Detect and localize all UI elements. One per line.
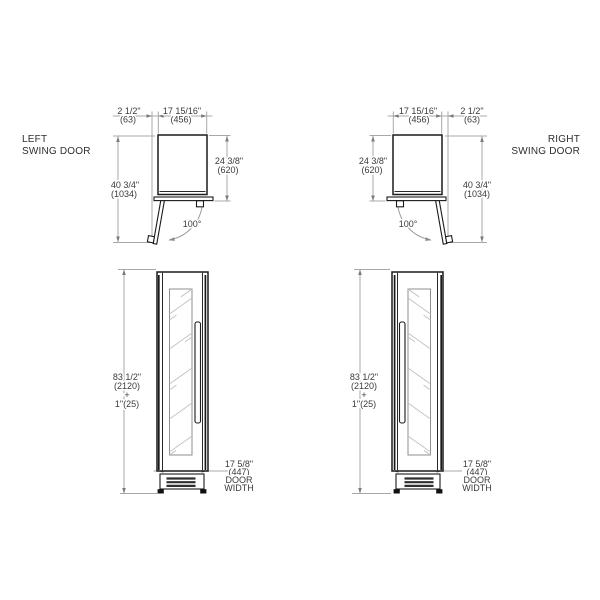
view-title: SWING DOOR — [511, 146, 580, 157]
dim-door-width-caption: WIDTH — [224, 483, 254, 493]
top-right-drawing — [370, 112, 488, 245]
dim-door-width-caption: WIDTH — [462, 483, 492, 493]
dim-total-depth-mm: (1034) — [464, 189, 490, 199]
view-title: SWING DOOR — [22, 146, 91, 157]
drawing-page: LEFT SWING DOOR 2 1/2" (63) 17 15/16" (4… — [0, 0, 600, 600]
view-title: RIGHT — [548, 134, 580, 145]
dim-clearance-mm: (63) — [120, 115, 136, 125]
front-left-view: 83 1/2" (2120) + 1"(25) 17 5/8" (447) DO… — [113, 270, 254, 494]
door-open-angle: 100° — [183, 219, 202, 229]
top-right-view: RIGHT SWING DOOR 17 15/16" (456) 2 1/2" … — [359, 106, 580, 244]
front-right-unit — [392, 272, 443, 494]
dim-depth-mm: (620) — [361, 165, 382, 175]
view-title: LEFT — [22, 134, 47, 145]
top-left-drawing — [113, 112, 231, 245]
top-left-view: LEFT SWING DOOR 2 1/2" (63) 17 15/16" (4… — [22, 106, 243, 244]
door-open-angle: 100° — [399, 219, 418, 229]
dim-height-extra: 1"(25) — [115, 399, 139, 409]
dim-width-mm: (456) — [170, 115, 191, 125]
dim-depth-mm: (620) — [217, 165, 238, 175]
dim-height-extra: 1"(25) — [352, 399, 376, 409]
dim-clearance-mm: (63) — [464, 115, 480, 125]
installation-drawing: LEFT SWING DOOR 2 1/2" (63) 17 15/16" (4… — [0, 0, 600, 600]
dim-width-mm: (456) — [408, 115, 429, 125]
front-left-unit — [157, 272, 208, 494]
dim-total-depth-mm: (1034) — [111, 189, 137, 199]
front-right-view: 83 1/2" (2120) + 1"(25) 17 5/8" (447) DO… — [350, 270, 492, 494]
